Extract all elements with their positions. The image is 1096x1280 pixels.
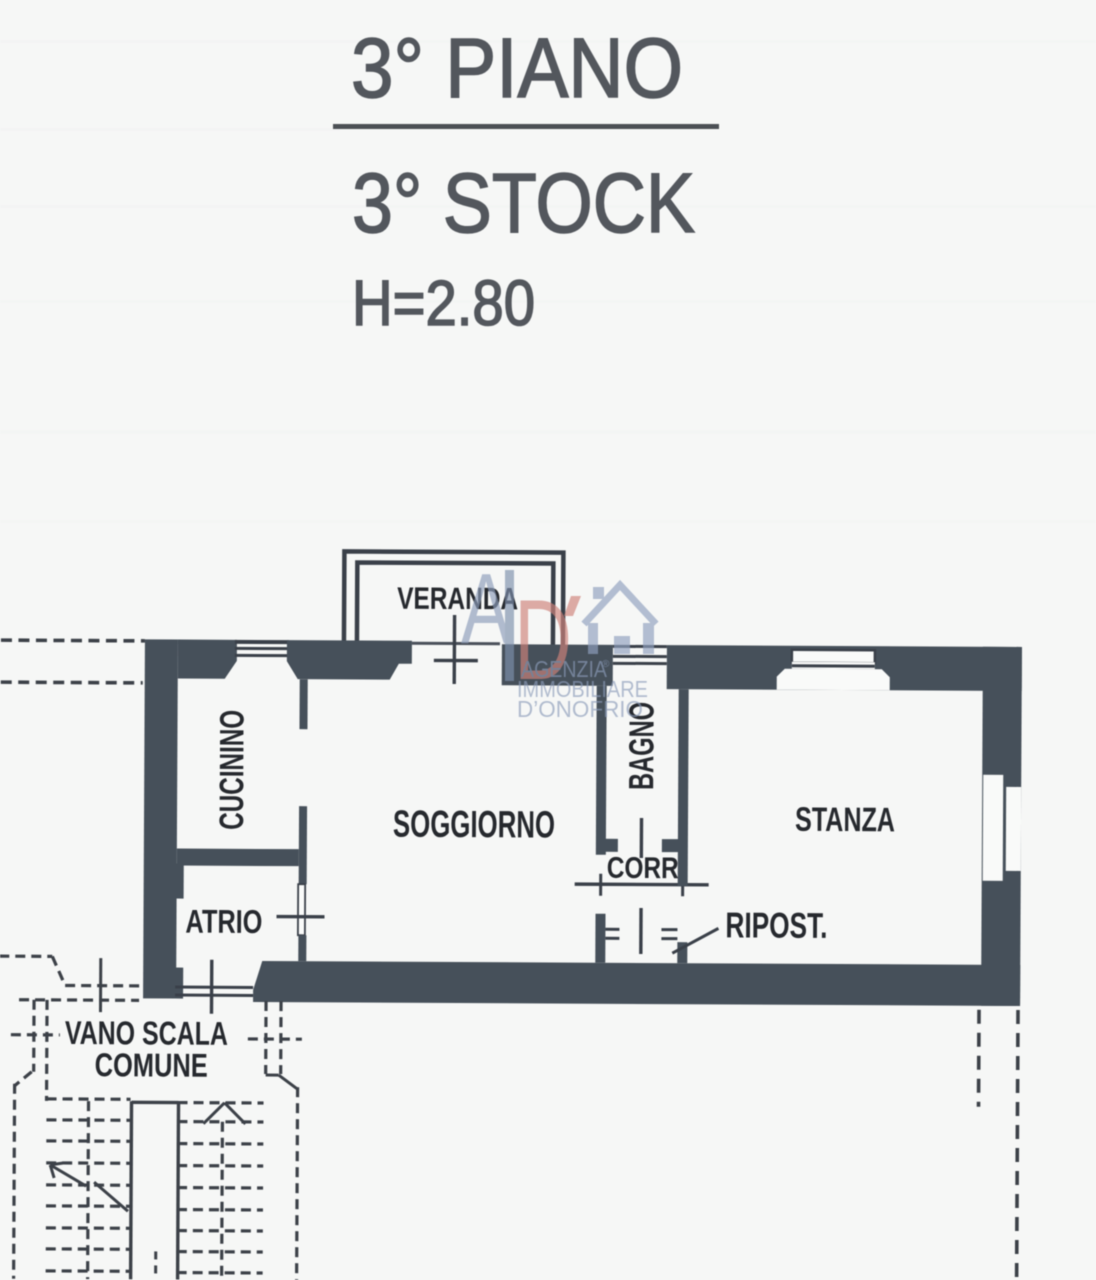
svg-text:RIPOST.: RIPOST. — [725, 904, 827, 946]
svg-text:®: ® — [602, 659, 610, 670]
svg-text:CUCININO: CUCININO — [213, 710, 252, 830]
svg-text:3° STOCK: 3° STOCK — [352, 156, 695, 250]
svg-text:ATRIO: ATRIO — [185, 903, 262, 940]
svg-text:CORR: CORR — [607, 852, 679, 885]
svg-text:STANZA: STANZA — [795, 801, 895, 840]
svg-text:H=2.80: H=2.80 — [352, 267, 535, 339]
svg-text:COMUNE: COMUNE — [95, 1046, 208, 1084]
svg-text:A: A — [461, 553, 511, 665]
svg-text:3° PIANO: 3° PIANO — [351, 21, 683, 115]
svg-text:D’ONOFRIO: D’ONOFRIO — [517, 696, 643, 722]
svg-text:SOGGIORNO: SOGGIORNO — [393, 804, 555, 847]
